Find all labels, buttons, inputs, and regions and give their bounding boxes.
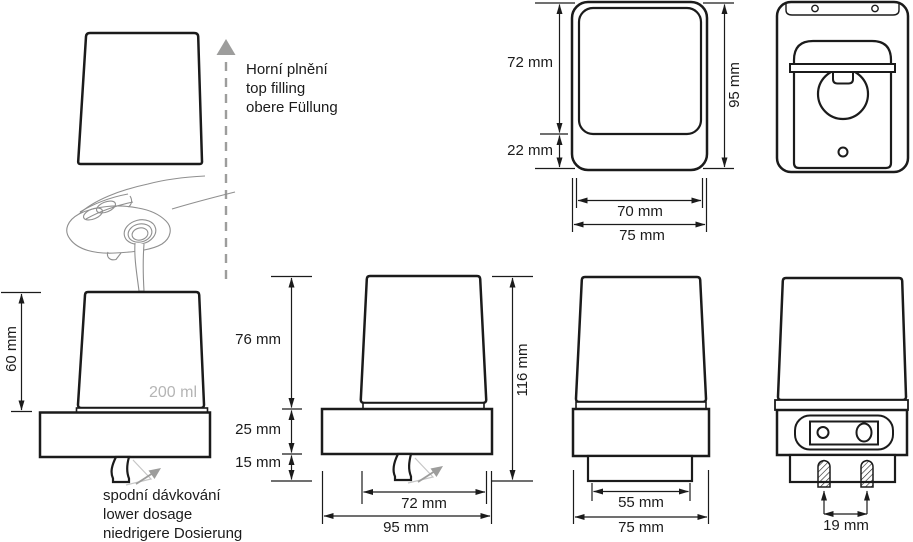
dispenser-line-art xyxy=(0,0,913,542)
dim-label-front-base-height: 25 mm xyxy=(235,421,281,439)
cup-lifted-drawing xyxy=(78,33,202,164)
annotation-top-filling-cz: Horní plnění xyxy=(246,60,338,79)
switch-hole-right xyxy=(857,424,872,442)
annotation-lower-dosage: spodní dávkování lower dosage niedrigere… xyxy=(103,486,242,542)
dim-label-front-cup-height: 76 mm xyxy=(235,331,281,349)
dim-label-front-cup-width: 72 mm xyxy=(401,495,447,513)
dispenser-side-view xyxy=(573,277,709,524)
switch-hole-left xyxy=(818,427,829,438)
dim-label-side-lower-width: 55 mm xyxy=(618,494,664,512)
dim-label-front-nozzle-height: 15 mm xyxy=(235,454,281,472)
pump-notch xyxy=(833,72,853,84)
dimension-screw-spacing xyxy=(824,491,867,514)
dispenser-bottom-view xyxy=(777,2,908,172)
dosage-direction-arrow-icon xyxy=(418,466,443,482)
clamp-bar xyxy=(790,64,895,72)
dispenser-front-view xyxy=(271,276,533,524)
top-filling-arrow xyxy=(217,39,236,286)
dim-label-top-body-depth: 72 mm xyxy=(507,54,553,72)
dim-label-top-total-depth: 95 mm xyxy=(726,62,744,108)
drain-hole xyxy=(839,148,848,157)
dim-label-side-total-width: 75 mm xyxy=(618,519,664,537)
annotation-lower-dosage-cz: spodní dávkování xyxy=(103,486,242,505)
dim-label-top-front-depth: 22 mm xyxy=(507,142,553,160)
hand-squeezing-bottle-drawing xyxy=(67,176,235,291)
dosage-direction-arrow-icon xyxy=(136,468,161,484)
dim-label-back-screw-spacing: 19 mm xyxy=(823,517,869,535)
technical-drawing-soap-dispenser: Horní plnění top filling obere Füllung s… xyxy=(0,0,913,542)
dispenser-back-view xyxy=(775,278,908,514)
dispenser-top-view xyxy=(535,2,734,232)
annotation-top-filling: Horní plnění top filling obere Füllung xyxy=(246,60,338,117)
dim-label-front-total-width: 95 mm xyxy=(383,519,429,537)
annotation-top-filling-de: obere Füllung xyxy=(246,98,338,117)
arrow-up-icon xyxy=(217,39,236,55)
pouring-liquid-stream xyxy=(135,243,144,291)
dim-label-cup-height: 60 mm xyxy=(3,326,21,372)
capacity-label: 200 ml xyxy=(149,384,197,402)
dim-label-top-total-width: 75 mm xyxy=(619,227,665,245)
dim-label-front-total-height: 116 mm xyxy=(514,343,532,396)
dim-label-top-inner-width: 70 mm xyxy=(617,203,663,221)
annotation-lower-dosage-en: lower dosage xyxy=(103,505,242,524)
annotation-top-filling-en: top filling xyxy=(246,79,338,98)
annotation-lower-dosage-de: niedrigere Dosierung xyxy=(103,524,242,542)
